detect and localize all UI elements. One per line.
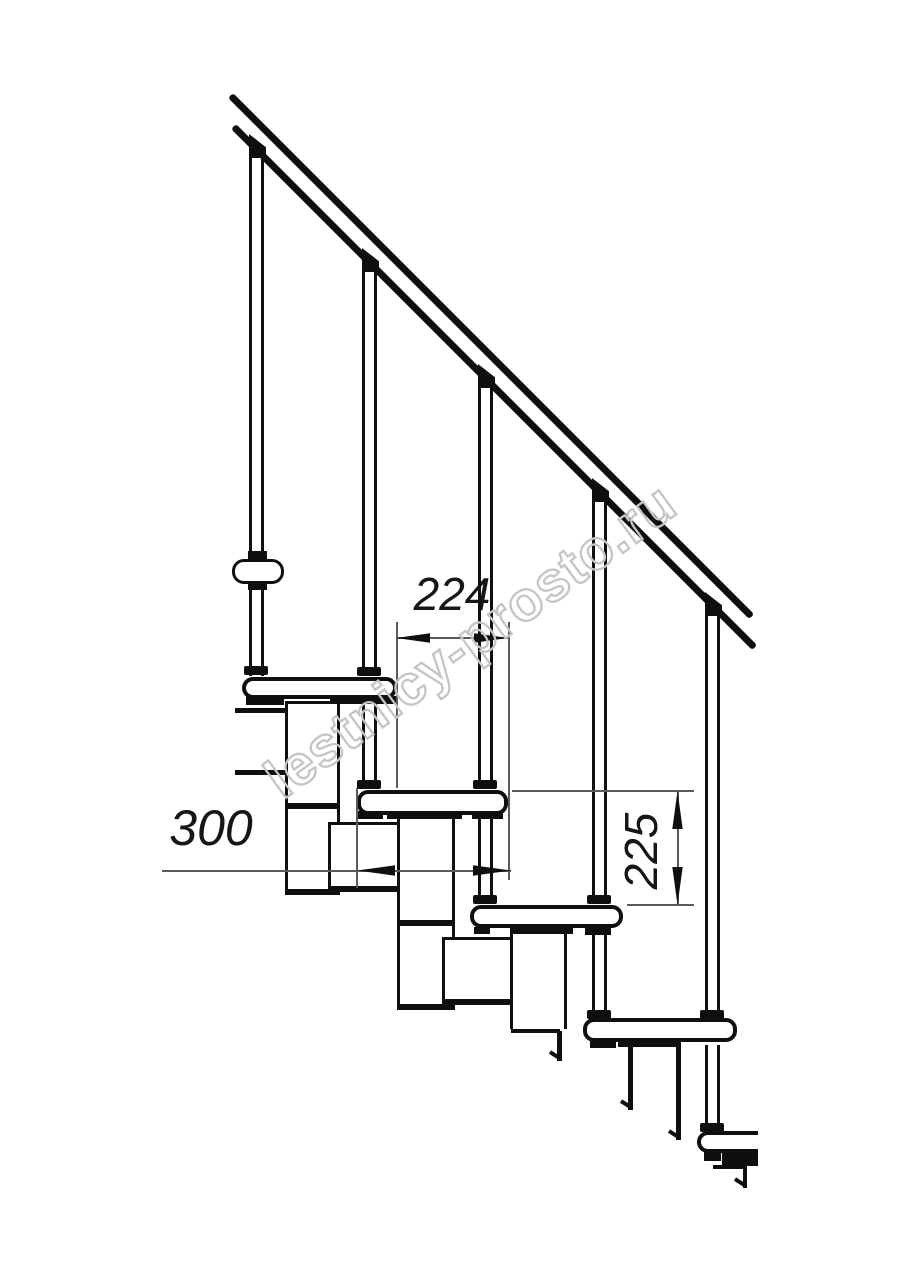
baluster-1-line: [249, 155, 252, 676]
baluster-4-rail-connector: [592, 478, 609, 502]
baluster-4-collar: [587, 895, 611, 904]
tread-step-4: [583, 1018, 737, 1042]
tread-mount-pad: [722, 1152, 758, 1166]
tread-step-3: [470, 905, 623, 928]
support-module-box: [510, 926, 567, 1029]
baluster-2-line: [374, 271, 377, 676]
baluster-2-rail-connector: [362, 248, 379, 272]
dimension-extension-line: [356, 788, 358, 888]
dimension-arrow-down: [671, 867, 684, 905]
support-module-box: [442, 937, 518, 1005]
baluster-1-bracket-nub: [248, 583, 267, 590]
baluster-4-line: [604, 930, 607, 1017]
baluster-3-line: [490, 816, 493, 903]
dimension-extension-line: [627, 904, 694, 906]
tread-step-2: [357, 790, 508, 815]
staircase-technical-drawing: 224 300 225 lestnicy-prosto.ru: [0, 0, 914, 1280]
tread-mount-pad: [474, 927, 490, 934]
baluster-4-line: [592, 930, 595, 1017]
baluster-1-collar: [244, 666, 268, 675]
dimension-extension-line: [508, 622, 510, 880]
watermark-text: lestnicy-prosto.ru: [252, 469, 687, 810]
baluster-5-rail-connector: [705, 592, 722, 616]
wall-attachment-line: [235, 708, 287, 713]
baluster-3-line: [478, 816, 481, 903]
module-break-line: [511, 1029, 560, 1033]
dimension-extension-line: [512, 790, 694, 792]
baluster-5-line: [717, 615, 720, 1017]
baluster-1-line: [261, 155, 264, 676]
baluster-2-collar: [357, 780, 381, 789]
baluster-1-bracket-nub: [248, 551, 267, 560]
support-module-box: [397, 812, 455, 923]
baluster-3-line: [478, 387, 481, 789]
dimension-label-300: 300: [161, 803, 261, 853]
dimension-line: [162, 870, 511, 872]
tread-mount-pad: [513, 927, 573, 934]
dimension-label-225: 225: [618, 786, 668, 916]
baluster-5-line: [717, 1045, 720, 1130]
tread-step-5: [697, 1131, 758, 1153]
baluster-5-line: [705, 1045, 708, 1130]
module-break-line: [676, 1043, 681, 1140]
tread-mount-pad: [704, 1152, 721, 1161]
baluster-1-bracket: [232, 559, 284, 584]
baluster-2-line: [362, 271, 365, 676]
module-break-line: [628, 1045, 633, 1110]
dimension-arrow-up: [671, 791, 684, 829]
baluster-3-collar: [473, 780, 497, 789]
baluster-3-rail-connector: [478, 364, 495, 388]
baluster-5-line: [705, 615, 708, 1017]
support-module-box: [328, 822, 404, 892]
baluster-3-collar: [473, 895, 497, 904]
